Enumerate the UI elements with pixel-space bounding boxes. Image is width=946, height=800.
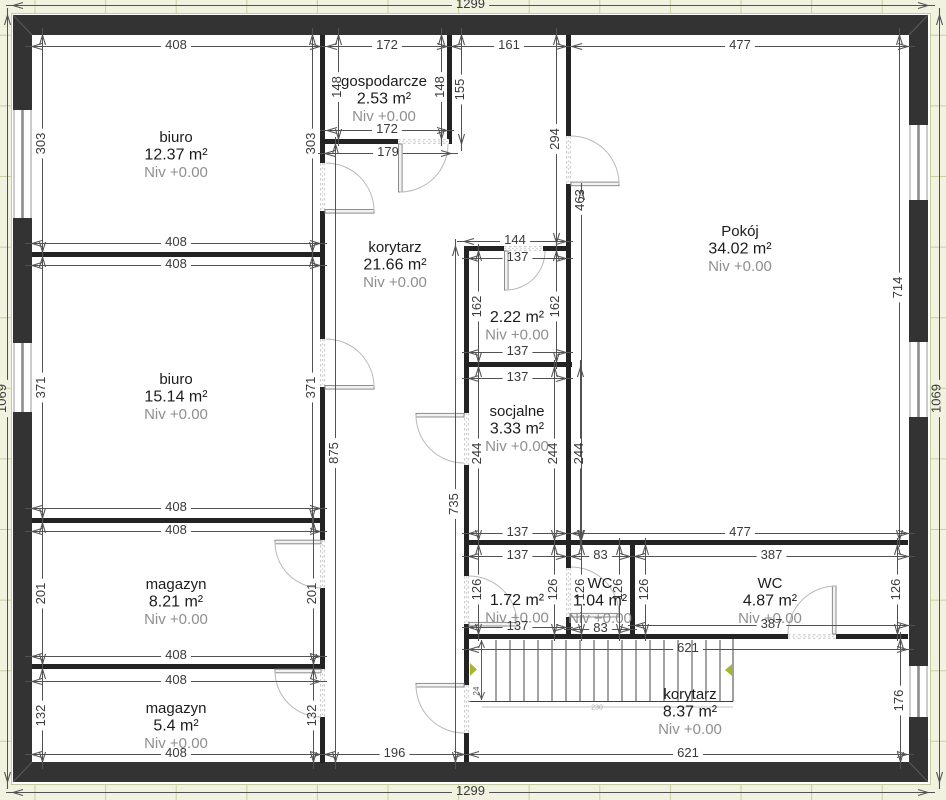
svg-text:179: 179 <box>377 144 399 159</box>
svg-text:126: 126 <box>636 579 651 601</box>
svg-text:408: 408 <box>165 499 187 514</box>
svg-text:172: 172 <box>376 37 398 52</box>
svg-text:126: 126 <box>610 579 625 601</box>
svg-text:Niv +0.00: Niv +0.00 <box>485 327 549 344</box>
svg-text:148: 148 <box>432 76 447 98</box>
svg-text:Niv +0.00: Niv +0.00 <box>485 438 549 455</box>
svg-text:244: 244 <box>545 443 560 465</box>
svg-text:gospodarcze: gospodarcze <box>341 73 427 90</box>
svg-text:408: 408 <box>165 647 187 662</box>
svg-text:1.72 m²: 1.72 m² <box>490 592 545 609</box>
svg-text:biuro: biuro <box>159 129 192 146</box>
svg-text:196: 196 <box>384 745 406 760</box>
svg-text:1069: 1069 <box>0 384 9 413</box>
svg-text:303: 303 <box>33 133 48 155</box>
svg-text:408: 408 <box>165 37 187 52</box>
svg-text:biuro: biuro <box>159 371 192 388</box>
svg-text:137: 137 <box>507 524 529 539</box>
svg-text:83: 83 <box>593 547 607 562</box>
svg-text:Pokój: Pokój <box>721 223 759 240</box>
svg-text:4.87 m²: 4.87 m² <box>743 593 798 610</box>
svg-text:137: 137 <box>507 618 529 633</box>
svg-text:1299: 1299 <box>456 0 485 11</box>
svg-text:201: 201 <box>33 583 48 605</box>
svg-text:137: 137 <box>507 369 529 384</box>
svg-text:244: 244 <box>469 443 484 465</box>
svg-text:korytarz: korytarz <box>663 686 716 703</box>
svg-text:12.37 m²: 12.37 m² <box>144 147 208 164</box>
svg-text:WC: WC <box>758 575 783 592</box>
svg-text:875: 875 <box>326 442 341 464</box>
svg-text:126: 126 <box>888 579 903 601</box>
svg-text:408: 408 <box>165 256 187 271</box>
svg-text:magazyn: magazyn <box>146 700 207 717</box>
svg-text:Niv +0.00: Niv +0.00 <box>363 274 427 291</box>
svg-text:34.02 m²: 34.02 m² <box>708 241 772 258</box>
svg-text:3.33 m²: 3.33 m² <box>490 421 545 438</box>
svg-text:5.4 m²: 5.4 m² <box>153 718 199 735</box>
svg-text:socjalne: socjalne <box>489 403 544 420</box>
svg-text:371: 371 <box>303 377 318 399</box>
svg-text:162: 162 <box>469 296 484 318</box>
svg-text:126: 126 <box>572 579 587 601</box>
svg-text:176: 176 <box>891 690 906 712</box>
svg-text:132: 132 <box>304 705 319 727</box>
svg-text:408: 408 <box>165 745 187 760</box>
svg-text:8.21 m²: 8.21 m² <box>149 594 204 611</box>
svg-text:735: 735 <box>446 493 461 515</box>
svg-text:408: 408 <box>165 672 187 687</box>
svg-text:294: 294 <box>547 128 562 150</box>
svg-text:Niv +0.00: Niv +0.00 <box>144 164 208 181</box>
svg-text:303: 303 <box>303 133 318 155</box>
svg-text:387: 387 <box>761 547 783 562</box>
svg-text:172: 172 <box>376 121 398 136</box>
svg-text:Niv +0.00: Niv +0.00 <box>708 258 772 275</box>
svg-text:230: 230 <box>591 705 603 712</box>
svg-text:137: 137 <box>507 343 529 358</box>
svg-text:371: 371 <box>33 377 48 399</box>
svg-text:WC: WC <box>588 575 613 592</box>
svg-text:714: 714 <box>890 277 905 299</box>
svg-text:126: 126 <box>469 579 484 601</box>
svg-text:2.53 m²: 2.53 m² <box>357 91 412 108</box>
svg-text:126: 126 <box>545 579 560 601</box>
svg-text:144: 144 <box>504 232 526 247</box>
svg-text:408: 408 <box>165 234 187 249</box>
svg-text:477: 477 <box>729 524 751 539</box>
svg-text:621: 621 <box>677 745 699 760</box>
svg-text:2.22 m²: 2.22 m² <box>490 309 545 326</box>
svg-text:Niv +0.00: Niv +0.00 <box>658 721 722 738</box>
svg-text:24: 24 <box>472 686 481 695</box>
svg-text:387: 387 <box>761 616 783 631</box>
svg-text:Niv +0.00: Niv +0.00 <box>144 611 208 628</box>
svg-text:201: 201 <box>304 583 319 605</box>
svg-text:408: 408 <box>165 522 187 537</box>
svg-text:1299: 1299 <box>456 783 485 798</box>
svg-text:21.66 m²: 21.66 m² <box>363 257 427 274</box>
svg-text:161: 161 <box>498 37 520 52</box>
svg-text:83: 83 <box>593 620 607 635</box>
svg-text:Niv +0.00: Niv +0.00 <box>144 406 208 423</box>
svg-text:621: 621 <box>677 640 699 655</box>
svg-text:148: 148 <box>329 76 344 98</box>
svg-text:korytarz: korytarz <box>368 239 421 256</box>
svg-text:463: 463 <box>572 189 587 211</box>
svg-text:132: 132 <box>33 705 48 727</box>
svg-text:1069: 1069 <box>929 384 944 413</box>
svg-text:162: 162 <box>547 296 562 318</box>
svg-text:477: 477 <box>729 37 751 52</box>
svg-text:244: 244 <box>571 443 586 465</box>
svg-text:155: 155 <box>452 79 467 101</box>
svg-text:15.14 m²: 15.14 m² <box>144 389 208 406</box>
svg-text:8.37 m²: 8.37 m² <box>663 704 718 721</box>
svg-text:magazyn: magazyn <box>146 576 207 593</box>
svg-text:137: 137 <box>507 547 529 562</box>
svg-text:137: 137 <box>507 249 529 264</box>
